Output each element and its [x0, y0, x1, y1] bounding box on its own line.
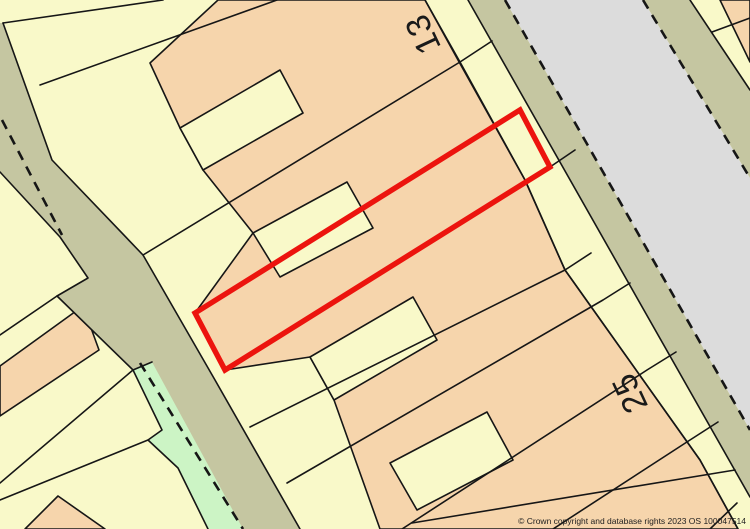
map-canvas: 13 25 © Crown copyright and database rig… [0, 0, 750, 529]
map-extract: 13 25 © Crown copyright and database rig… [0, 0, 750, 529]
copyright-notice: © Crown copyright and database rights 20… [518, 516, 746, 526]
